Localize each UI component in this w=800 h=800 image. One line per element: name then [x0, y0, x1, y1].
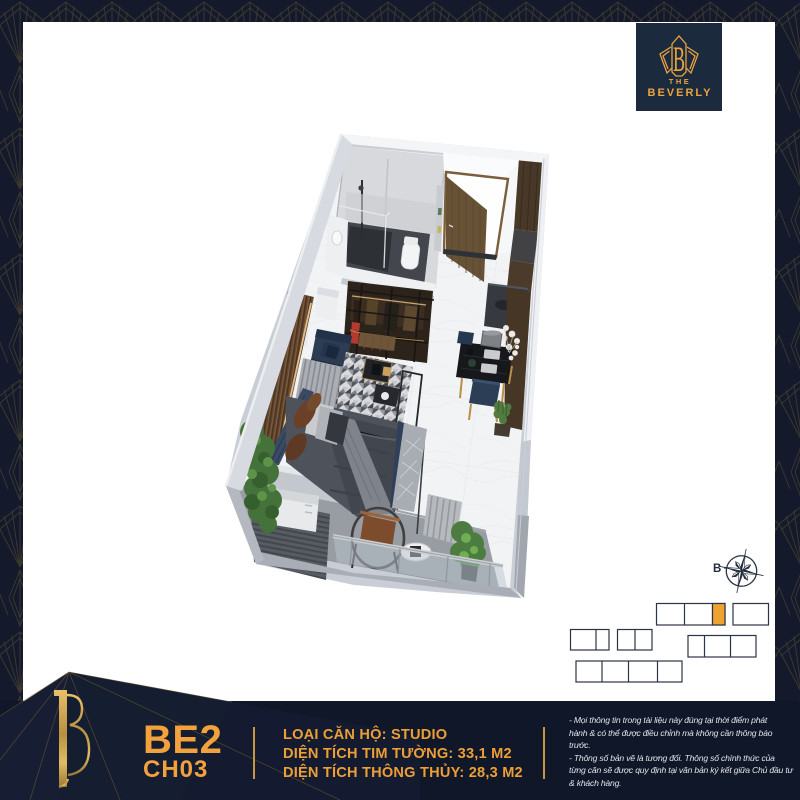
svg-text:B: B: [673, 41, 685, 80]
svg-text:THE: THE: [669, 77, 692, 86]
svg-text:BEVERLY: BEVERLY: [648, 87, 713, 99]
svg-text:B: B: [713, 563, 721, 575]
